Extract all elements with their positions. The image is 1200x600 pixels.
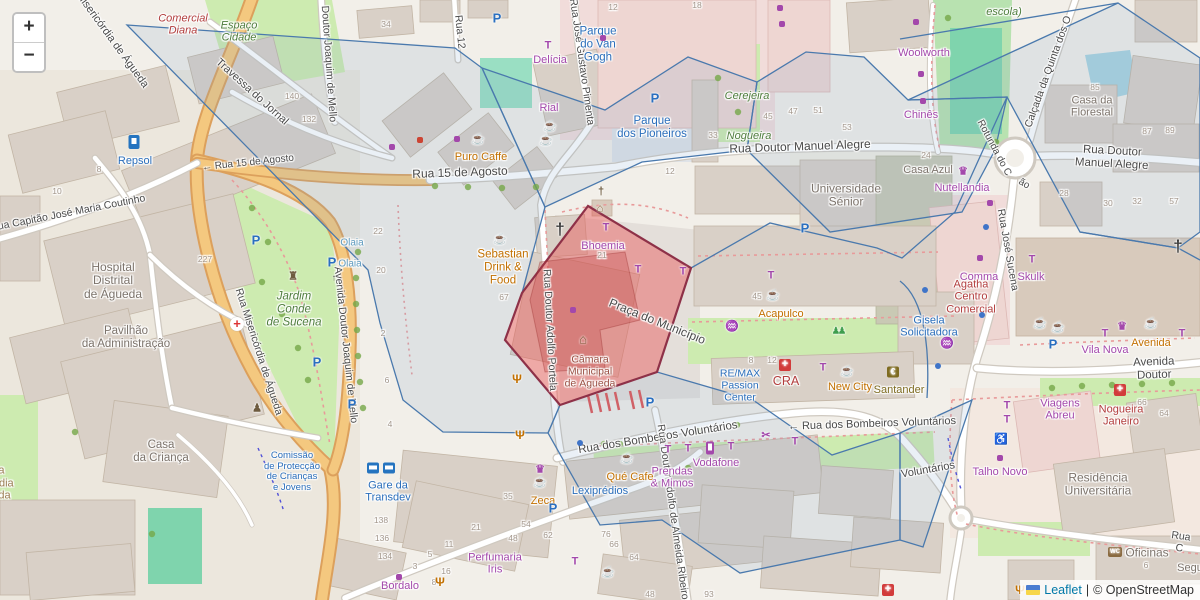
- zoom-out-button[interactable]: −: [14, 43, 44, 71]
- attribution-separator: |: [1086, 583, 1089, 597]
- zoom-in-button[interactable]: +: [14, 14, 44, 43]
- leaflet-link[interactable]: Leaflet: [1044, 583, 1082, 597]
- ukraine-flag-icon: [1026, 585, 1040, 595]
- osm-copyright[interactable]: © OpenStreetMap: [1093, 583, 1194, 597]
- attribution-bar: Leaflet | © OpenStreetMap: [1020, 580, 1200, 600]
- map-canvas[interactable]: Misericórdia de ÁguedaRua Misericórdia d…: [0, 0, 1200, 600]
- base-map: [0, 0, 1200, 600]
- pitch: [148, 508, 202, 584]
- zoom-control: + −: [12, 12, 46, 73]
